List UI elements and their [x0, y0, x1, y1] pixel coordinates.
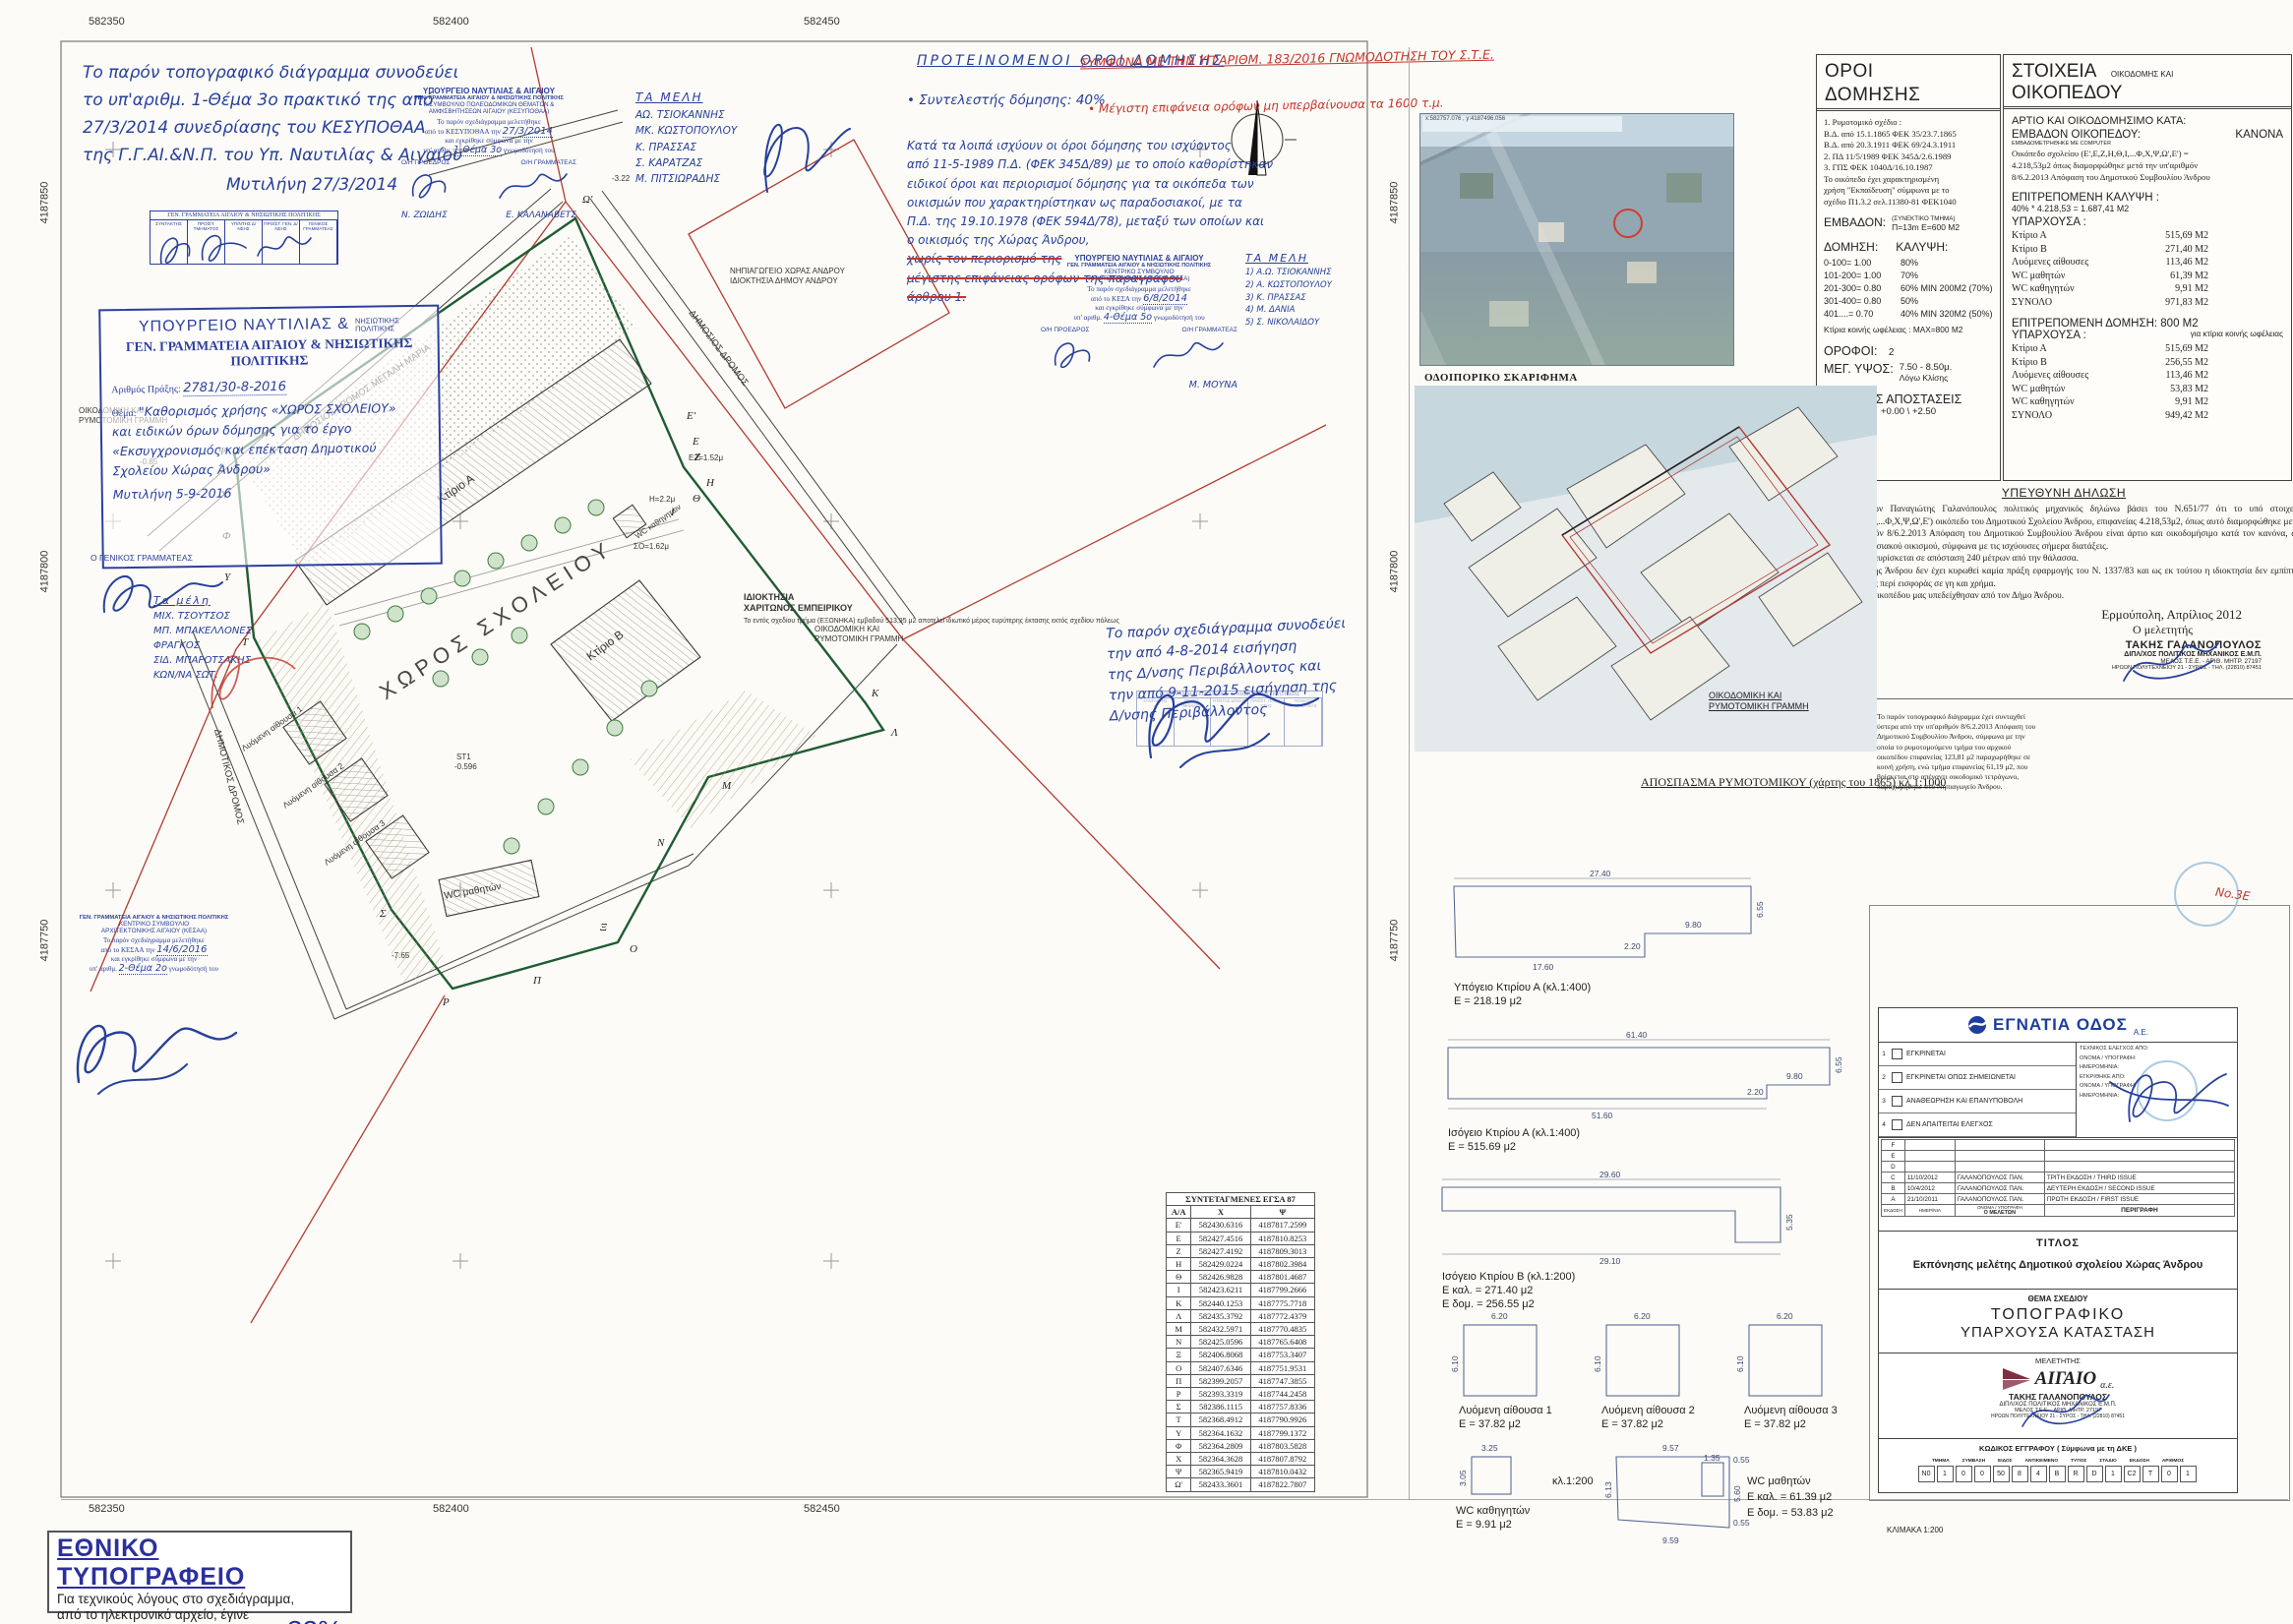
svg-text:27.40: 27.40 [1590, 871, 1611, 878]
signature-squiggles [155, 226, 332, 271]
aerial-caption: ΟΔΟΙΠΟΡΙΚΟ ΣΚΑΡΙΦΗΜΑ [1424, 372, 1578, 384]
svg-text:29.60: 29.60 [1599, 1170, 1621, 1179]
kesypothaa-l8a: υπ' αριθμ. [423, 147, 452, 154]
build-ratio-label: ΔΟΜΗΣΗ: [1824, 240, 1878, 254]
permit-title-2: ΓΕΝ. ΓΡΑΜΜΑΤΕΙΑ ΑΙΓΑΙΟΥ & ΝΗΣΙΩΤΙΚΗΣ ΠΟΛ… [111, 334, 428, 371]
svg-text:Ζ: Ζ [694, 451, 701, 463]
wc-students-caption: WC μαθητών [1747, 1475, 1811, 1487]
svg-text:Λ: Λ [890, 727, 898, 739]
svg-text:6.13: 6.13 [1603, 1481, 1613, 1498]
permit-title-main: ΥΠΟΥΡΓΕΙΟ ΝΑΥΤΙΛΙΑΣ & [139, 316, 349, 336]
zoning-line-label-2: ΡΥΜΟΤΟΜΙΚΗ ΓΡΑΜΜΗ [1709, 701, 1809, 711]
grid-y-right-1: 4187850 [1388, 182, 1400, 224]
proposed-body-text: Κατά τα λοιπά ισχύουν οι όροι δόμησης το… [907, 139, 1273, 247]
scanned-topographic-sheet: ΧΩΡΟΣ ΣΧΟΛΕΙΟΥ Κτίριο Α Κτίριο Β Λυόμενη… [0, 0, 2293, 1624]
coords-title: ΣΥΝΤΕΤΑΓΜΕΝΕΣ ΕΓΣΑ 87 [1167, 1193, 1315, 1206]
kesypothaa-l8c: γνωμοδότησή του [504, 147, 555, 154]
ministry-permit-stamp: ΥΠΟΥΡΓΕΙΟ ΝΑΥΤΙΛΙΑΣ & ΝΗΣΙΩΤΙΚΗΣ ΠΟΛΙΤΙΚ… [98, 305, 443, 570]
aerial-building-patch-1 [1539, 222, 1564, 242]
coords-col-id: Α/Α [1167, 1206, 1191, 1219]
zoning-note: Το παρόν τοπογραφικό διάγραμμα έχει συντ… [1877, 712, 2036, 793]
printing-office-title: ΕΘΝΙΚΟ ΤΥΠΟΓΡΑΦΕΙΟ [57, 1534, 342, 1592]
svg-text:9.59: 9.59 [1662, 1535, 1679, 1545]
grid-y-left-3: 4187750 [38, 920, 50, 962]
svg-text:9.80: 9.80 [1786, 1071, 1803, 1081]
permit-title-side: ΝΗΣΙΩΤΙΚΗΣ ΠΟΛΙΤΙΚΗΣ [355, 317, 399, 333]
list-item: 101-200= 1.0070% [1824, 270, 1993, 282]
coordinates-table: ΣΥΝΤΕΤΑΓΜΕΝΕΣ ΕΓΣΑ 87 Α/Α Χ Ψ Ε'582430.6… [1166, 1192, 1315, 1492]
table-row: Κτίριο Β271,40 Μ2 [2012, 243, 2208, 257]
declaration-title: ΥΠΕΥΘΥΝΗ ΔΗΛΩΣΗ [1827, 486, 2293, 500]
svg-text:5.35: 5.35 [1784, 1214, 1794, 1231]
permit-subject-value: "Καθορισμός χρήσης «ΧΩΡΟΣ ΣΧΟΛΕΙΟΥ» και … [112, 400, 396, 478]
approval-row: 4ΔΕΝ ΑΠΑΙΤΕΙΤΑΙ ΕΛΕΓΧΟΣ [1879, 1113, 2076, 1137]
list-item: 301-400= 0.8050% [1824, 295, 1993, 308]
coverage-label: ΚΑΛΥΨΗ: [1896, 240, 1948, 254]
table-row: Κ582440.12534187775.7718 [1167, 1296, 1315, 1309]
table-row: Κτίριο Α515,69 Μ2 [2012, 342, 2208, 356]
printing-office-line1: Για τεχνικούς λόγους στο σχεδιάγραμμα, [57, 1592, 342, 1607]
plot-area-note: ΕΜΒΑΔΟΜΕΤΡΗΘΗΚΕ ΜΕ COMPUTER [2012, 141, 2141, 147]
allowed-build-label: ΕΠΙΤΡΕΠΟΜΕΝΗ ΔΟΜΗΣΗ: 800 Μ2 [2012, 318, 2283, 330]
allowed-coverage-label: ΕΠΙΤΡΕΠΟΜΕΝΗ ΚΑΛΥΨΗ : [2012, 192, 2283, 204]
permit-date: Μυτιλήνη 5-9-2016 [113, 482, 430, 501]
svg-text:3.25: 3.25 [1481, 1443, 1498, 1453]
plot-title-2: ΟΙΚΟΠΕΔΟΥ [2012, 83, 2283, 104]
label-building-line-2a: ΟΙΚΟΔΟΜΙΚΗ ΚΑΙ [815, 625, 879, 633]
wc-students-area1: Ε καλ. = 61.39 μ2 [1747, 1491, 1832, 1503]
label-road-2: ΔΗΜΟΤΙΚΟΣ ΔΡΟΜΟΣ [211, 728, 246, 825]
permit-number-label: Αριθμός Πράξης: [111, 384, 181, 395]
svg-text:2.20: 2.20 [1747, 1087, 1764, 1097]
grid-x-bot-1: 582350 [89, 1503, 125, 1515]
ground-b-caption: Ισόγειο Κτιρίου Β (κλ.1:200) [1442, 1271, 1575, 1283]
table-row: Ο582407.63464187751.9531 [1167, 1361, 1315, 1374]
wc-teachers-caption: WC καθηγητών [1456, 1505, 1531, 1517]
approval-signature [2100, 1053, 2233, 1135]
grid-y-right-3: 4187750 [1388, 920, 1400, 962]
kesa-l1: ΥΠΟΥΡΓΕΙΟ ΝΑΥΤΙΛΙΑΣ & ΑΙΓΑΙΟΥ [1041, 254, 1237, 263]
svg-text:61.40: 61.40 [1626, 1030, 1648, 1040]
svg-text:6.10: 6.10 [1735, 1355, 1745, 1372]
kesaa-signatures [59, 1003, 246, 1102]
kesa-president-label: Ο/Η ΠΡΟΕΔΡΟΣ [1041, 327, 1090, 333]
company-name: ΕΓΝΑΤΙΑ ΟΔΟΣ [1993, 1015, 2128, 1035]
aerial-building-patch-3 [1489, 301, 1529, 327]
kesypothaa-protocol: 1-Θέμα 3ο [453, 145, 502, 156]
permit-subject-label: Θέμα: [112, 407, 137, 418]
label-st1-level: -0.596 [454, 762, 477, 771]
designer-signature [2007, 1383, 2115, 1438]
zoning-line-label-1: ΟΙΚΟΔΟΜΙΚΗ ΚΑΙ [1709, 691, 1781, 700]
kesypothaa-l4: ΑΜΦΙΣΒΗΤΗΣΕΩΝ ΑΙΓΑΙΟΥ (ΚΕΣΥΠΟΘΑΑ) [401, 108, 576, 115]
subject-line-1: ΤΟΠΟΓΡΑΦΙΚΟ [1879, 1306, 2237, 1324]
svg-text:6.20: 6.20 [1634, 1311, 1651, 1321]
svg-text:0.55: 0.55 [1733, 1518, 1750, 1528]
table-row: C 11/10/2012 ΓΑΛΑΝΟΠΟΥΛΟΣ ΠΑΝ. ΤΡΙΤΗ ΕΚΔ… [1882, 1173, 2235, 1183]
ground-a-outline [1448, 1048, 1830, 1099]
table-row: WC καθηγητών9,91 Μ2 [2012, 282, 2208, 296]
table-row: Σ582386.11154187757.8336 [1167, 1401, 1315, 1413]
terms-title-2: ΔΟΜΗΣΗΣ [1817, 85, 2000, 108]
kesaa-l5a: από το ΚΕΣΑΑ την [100, 946, 154, 954]
approval-row: 2ΕΓΚΡΙΝΕΤΑΙ ΟΠΩΣ ΣΗΜΕΙΩΝΕΤΑΙ [1879, 1066, 2076, 1090]
title-label: ΤΙΤΛΟΣ [1879, 1237, 2237, 1249]
prefab2-area: Ε = 37.82 μ2 [1601, 1418, 1663, 1430]
kesypothaa-l5: Το παρόν σχεδιάγραμμα μελετήθηκε [401, 118, 576, 126]
kesa-l7: και εγκρίθηκε σύμφωνα με την [1041, 304, 1237, 312]
table-row: Λυόμενες αίθουσες113,46 Μ2 [2012, 369, 2208, 383]
kesa-protocol: 4-Θέμα 5ο [1104, 312, 1152, 324]
permit-number-value: 2781/30-8-2016 [183, 379, 286, 395]
svg-text:6.10: 6.10 [1593, 1355, 1602, 1372]
svg-text:Ω': Ω' [582, 194, 593, 206]
wc-teachers-area: Ε = 9.91 μ2 [1456, 1519, 1512, 1531]
aerial-site-marker [1613, 209, 1643, 238]
subject-label: ΘΕΜΑ ΣΧΕΔΙΟΥ [1879, 1294, 2237, 1303]
prefab3-area: Ε = 37.82 μ2 [1744, 1418, 1806, 1430]
svg-text:17.60: 17.60 [1533, 962, 1554, 972]
svg-text:Ν: Ν [656, 837, 665, 849]
svg-text:Π: Π [532, 975, 542, 987]
label-building-line-2b: ΡΥΜΟΤΟΜΙΚΗ ΓΡΑΜΜΗ [815, 634, 904, 643]
members-list-2: ΤΑ ΜΕΛΗ 1) Α.Ω. ΤΣΙΟΚΑΝΝΗΣ 2) Α. ΚΩΣΤΟΠΟ… [1245, 252, 1363, 330]
svg-text:5.60: 5.60 [1732, 1485, 1742, 1502]
plot-area-label: ΕΜΒΑΔΟΝ ΟΙΚΟΠΕΔΟΥ: [2012, 129, 2141, 141]
subject-line-2: ΥΠΑΡΧΟΥΣΑ ΚΑΤΑΣΤΑΣΗ [1879, 1324, 2237, 1341]
kesaa-l7a: υπ' αριθμ. [90, 965, 117, 973]
kesaa-l6: και εγκρίθηκε σύμφωνα με την [53, 955, 255, 963]
svg-text:Ε: Ε [692, 436, 699, 448]
svg-text:Σ: Σ [379, 908, 387, 920]
kesa-l8a: υπ' αριθμ. [1073, 314, 1102, 322]
basement-a-outline [1454, 886, 1751, 957]
members1-signatures [748, 93, 856, 211]
kesa-l6a: από το ΚΕΣΑ την [1091, 295, 1141, 303]
coords-col-y: Ψ [1250, 1206, 1314, 1219]
height-note: Λόγω Κλίσης [1900, 373, 1953, 383]
aerial-photo: x:582757.076 , y:4187496.056 [1419, 113, 1734, 366]
ground-b-area2: Ε δομ. = 256.55 μ2 [1442, 1298, 1535, 1310]
plot-area-text: Οικόπεδο σχολείου (Ε',Ε,Ζ,Η,Θ,Ι,...Φ,Χ,Ψ… [2012, 149, 2283, 183]
list-item: 201-300= 0.8060% MIN 200M2 (70%) [1824, 282, 1993, 295]
kesypothaa-l6a: από το ΚΕΣΥΠΟΘΑΑ την [425, 128, 501, 136]
kesypothaa-l7: και εγκρίθηκε σύμφωνα με την [401, 137, 576, 145]
svg-text:Ε': Ε' [686, 410, 696, 422]
rev-footer-4: Ο ΜΕΛΕΤΩΝ [1958, 1210, 2042, 1216]
table-row: WC καθηγητών9,91 Μ2 [2012, 395, 2208, 409]
existing-coverage-label: ΥΠΑΡΧΟΥΣΑ : [2012, 216, 2283, 228]
table-row: B 10/4/2012 ΓΑΛΑΝΟΠΟΥΛΟΣ ΠΑΝ. ΔΕΥΤΕΡΗ ΕΚ… [1882, 1183, 2235, 1194]
coords-rows: Ε'582430.63164187817.2599 Ε582427.451641… [1167, 1219, 1315, 1491]
owner-note: Το εντός σχεδίου τμήμα (ΕΞΩΝΗΚΑ) εμβαδού… [744, 617, 1119, 625]
svg-text:Ξ: Ξ [600, 922, 607, 933]
coords-col-x: Χ [1191, 1206, 1250, 1219]
scale-label: ΚΛΙΜΑΚΑ 1:200 [1887, 1526, 1943, 1534]
ratio-coverage-rows: 0-100= 1.0080%101-200= 1.0070%201-300= 0… [1824, 257, 1993, 321]
doc-code-boxes: Ν01005084ΒRD1C2T01 [1879, 1466, 2237, 1482]
table-row: Ω'582433.36014187822.7807 [1167, 1478, 1315, 1491]
kesa-l3: ΚΕΝΤΡΙΚΟ ΣΥΜΒΟΥΛΙΟ [1041, 269, 1237, 275]
list-item: 0-100= 1.0080% [1824, 257, 1993, 270]
kesypothaa-president-label: Ο/Η ΠΡΟΕΔΡΟΣ [401, 159, 451, 166]
existing-coverage-table: Κτίριο Α515,69 Μ2Κτίριο Β271,40 Μ2Λυόμεν… [2012, 229, 2283, 309]
svg-text:6.55: 6.55 [1834, 1056, 1843, 1073]
wc-students-outline [1616, 1457, 1729, 1528]
grid-x-top-1: 582350 [89, 16, 125, 28]
grid-y-left-1: 4187850 [38, 182, 50, 224]
floor-plan-diagrams: 27.40 6.55 9.80 2.20 17.60 Υπόγειο Κτιρί… [1434, 871, 1872, 1559]
kesa-secretary-name: Μ. ΜΟΥΝΑ [1041, 380, 1237, 391]
svg-text:Ρ: Ρ [442, 996, 450, 1008]
table-row: Λ582435.37924187772.4379 [1167, 1309, 1315, 1322]
approval-row: 1ΕΓΚΡΙΝΕΤΑΙ [1879, 1043, 2076, 1066]
table-row: ΣΥΝΟΛΟ949,42 Μ2 [2012, 409, 2208, 423]
signature-table-header: ΓΕΝ. ΓΡΑΜΜΑΤΕΙΑ ΑΙΓΑΙΟΥ & ΝΗΣΙΩΤΙΚΗΣ ΠΟΛ… [150, 211, 338, 220]
spot-level-3: -7.65 [392, 951, 410, 960]
members3-red-scribble [197, 630, 315, 728]
table-row: Ν582425.05964187765.6408 [1167, 1336, 1315, 1349]
table-row: ΣΥΝΟΛΟ971,83 Μ2 [2012, 296, 2208, 310]
members3-title: Τα μέλη [153, 594, 291, 607]
approval-options: 1ΕΓΚΡΙΝΕΤΑΙ 2ΕΓΚΡΙΝΕΤΑΙ ΟΠΩΣ ΣΗΜΕΙΩΝΕΤΑΙ… [1879, 1043, 2076, 1137]
drawing-title: Εκπόνησης μελέτης Δημοτικού σχολείου Χώρ… [1879, 1259, 2237, 1271]
kesypothaa-secretary-name: Ε. ΚΑΛΑΝΑΒΕΤΣ [506, 211, 576, 220]
table-row: Φ582364.28094187803.5828 [1167, 1439, 1315, 1452]
table-row: Μ582432.59714187770.4835 [1167, 1323, 1315, 1336]
sheet-divider [1409, 47, 1410, 1499]
kesypothaa-signatures [405, 166, 573, 206]
aerial-coords-strip: x:582757.076 , y:4187496.056 [1422, 116, 1622, 132]
table-row: Ψ582365.94194187810.0432 [1167, 1466, 1315, 1478]
revision-rows: F E D [1882, 1140, 2235, 1205]
handwritten-note-topleft-date: Μυτιλήνη 27/3/2014 [226, 175, 397, 195]
aerial-grove-patch [1666, 173, 1702, 203]
table-row: Ι582423.62114187799.2666 [1167, 1284, 1315, 1296]
allowed-build-note: για κτίρια κοινής ωφέλειας [2191, 330, 2283, 341]
svg-text:Ο: Ο [630, 943, 637, 955]
area-note: (ΣΥΝΕΚΤΙΚΟ ΤΜΗΜΑ) [1892, 215, 1960, 222]
table-row: A 21/10/2011 ΓΑΛΑΝΟΠΟΥΛΟΣ ΠΑΝ. ΠΡΩΤΗ ΕΚΔ… [1882, 1194, 2235, 1205]
doc-code-group-labels: ΤΜΗΜΑΣΥΜΒΑΣΗΕΙΔΟΣΑΝΤΙΚΕΙΜΕΝΟΤΥΠΟΣΣΤΑΔΙΟΕ… [1879, 1459, 2237, 1464]
height-value: 7.50 - 8.50μ. [1900, 362, 1953, 373]
members2-title: ΤΑ ΜΕΛΗ [1245, 252, 1363, 265]
svg-text:2.20: 2.20 [1624, 941, 1641, 951]
prefab1-outline [1464, 1325, 1537, 1396]
list-item: 401....= 0.7040% MIN 320M2 (50%) [1824, 308, 1993, 321]
table-row: Ξ582406.80684187753.3407 [1167, 1349, 1315, 1361]
prefab2-outline [1606, 1325, 1679, 1396]
grid-x-top-3: 582450 [804, 16, 840, 28]
prefab3-caption: Λυόμενη αίθουσα 3 [1744, 1405, 1838, 1416]
svg-text:Θ: Θ [693, 493, 700, 505]
table-row: Ε'582430.63164187817.2599 [1167, 1219, 1315, 1232]
kesaa-l3: ΑΡΧΙΤΕΚΤΟΝΙΚΗΣ ΑΙΓΑΙΟΥ (ΚΕΣΑΑ) [53, 928, 255, 934]
prefab3-outline [1749, 1325, 1822, 1396]
kesa-signatures [1046, 333, 1233, 375]
svg-text:6.55: 6.55 [1755, 901, 1765, 918]
kesypothaa-president-name: Ν. ΖΩΙΔΗΣ [401, 211, 448, 220]
wc-students-area2: Ε δομ. = 53.83 μ2 [1747, 1507, 1834, 1519]
svg-text:6.10: 6.10 [1450, 1355, 1460, 1372]
rev-footer-5: ΠΕΡΙΓΡΑΦΗ [2044, 1205, 2234, 1217]
svg-text:6.20: 6.20 [1491, 1311, 1508, 1321]
terms-title-1: ΟΡΟΙ [1817, 55, 2000, 85]
label-road-3: ΔΗΜΟΣΙΟΣ ΔΡΟΜΟΣ [687, 308, 751, 389]
members2-names: 1) Α.Ω. ΤΣΙΟΚΑΝΝΗΣ 2) Α. ΚΩΣΤΟΠΟΥΛΟΥ 3) … [1245, 267, 1363, 330]
table-row: Π582399.20574187747.3855 [1167, 1374, 1315, 1387]
existing-build-label: ΥΠΑΡΧΟΥΣΑ : [2012, 330, 2086, 341]
kesa-secretary-label: Ο/Η ΓΡΑΜΜΑΤΕΑΣ [1182, 327, 1237, 333]
svg-text:9.57: 9.57 [1662, 1443, 1679, 1453]
declaration-body: Ο υπογράφων Παναγιώτης Γαλανόπουλος πολι… [1827, 504, 2293, 603]
designer-label: ΜΕΛΕΤΗΤΗΣ [1879, 1356, 2237, 1365]
zoning-extract-map [1415, 386, 1877, 752]
national-printing-office-box: ΕΘΝΙΚΟ ΤΥΠΟΓΡΑΦΕΙΟ Για τεχνικούς λόγους … [47, 1531, 352, 1613]
kesypothaa-secretary-label: Ο/Η ΓΡΑΜΜΑΤΕΑΣ [521, 159, 576, 166]
signature-table-stamp: ΓΕΝ. ΓΡΑΜΜΑΤΕΙΑ ΑΙΓΑΙΟΥ & ΝΗΣΙΩΤΙΚΗΣ ΠΟΛ… [150, 211, 338, 265]
grid-x-bot-2: 582400 [433, 1503, 469, 1515]
approval-row: 3ΑΝΑΘΕΩΡΗΣΗ ΚΑΙ ΕΠΑΝΥΠΟΒΟΛΗ [1879, 1090, 2076, 1113]
table-row: D [1882, 1162, 2235, 1173]
proposed-coefficient: • Συντελεστής δόμησης: 40% [907, 92, 1106, 108]
kesa-stamp: ΥΠΟΥΡΓΕΙΟ ΝΑΥΤΙΛΙΑΣ & ΑΙΓΑΙΟΥ ΓΕΝ. ΓΡΑΜΜ… [1041, 254, 1237, 391]
aerial-field-patch [1460, 173, 1493, 199]
area-value: Π=13m Ε=600 Μ2 [1892, 222, 1960, 232]
table-row: Ε582427.45164187810.8253 [1167, 1232, 1315, 1244]
plot-data-panel: ΣΤΟΙΧΕΙΑ ΟΙΚΟΔΟΜΗΣ ΚΑΙ ΟΙΚΟΠΕΔΟΥ ΑΡΤΙΟ Κ… [2003, 54, 2292, 481]
kesypothaa-l1: ΥΠΟΥΡΓΕΙΟ ΝΑΥΤΙΛΙΑΣ & ΑΙΓΑΙΟΥ [401, 87, 576, 95]
label-property-owner-1: ΙΔΙΟΚΤΗΣΙΑ [744, 592, 795, 602]
kesaa-l2: ΚΕΝΤΡΙΚΟ ΣΥΜΒΟΥΛΙΟ [53, 921, 255, 928]
declaration-block: ΥΠΕΥΘΥΝΗ ΔΗΛΩΣΗ Ο υπογράφων Παναγιώτης Γ… [1816, 482, 2293, 699]
rev-footer-2: ΗΜΕΡ/ΝΙΑ [1904, 1205, 1955, 1217]
buildable-label: ΑΡΤΙΟ ΚΑΙ ΟΙΚΟΔΟΜΗΣΙΜΟ ΚΑΤΑ: [2012, 115, 2283, 127]
svg-text:1.35: 1.35 [1704, 1453, 1720, 1463]
by-rule-value: ΚΑΝΟΝΑ [2235, 129, 2283, 147]
allowed-coverage-calc: 40% * 4.218,53 = 1.687,41 Μ2 [2012, 204, 2283, 213]
label-kindergarten-1: ΝΗΠΙΑΓΩΓΕΙΟ ΧΩΡΑΣ ΑΝΔΡΟΥ [730, 267, 846, 275]
plot-title-small: ΟΙΚΟΔΟΜΗΣ ΚΑΙ [2111, 70, 2174, 79]
svg-text:29.10: 29.10 [1599, 1256, 1621, 1266]
svg-text:Η: Η [705, 477, 715, 489]
kesypothaa-stamp: ΥΠΟΥΡΓΕΙΟ ΝΑΥΤΙΛΙΑΣ & ΑΙΓΑΙΟΥ ΓΕΝ. ΓΡΑΜΜ… [401, 87, 576, 220]
table-row: Υ582364.16324187799.1372 [1167, 1426, 1315, 1439]
table-row: WC μαθητών53,83 Μ2 [2012, 383, 2208, 396]
faded-stamp-signatures [1121, 669, 1348, 777]
grid-y-left-2: 4187800 [38, 551, 50, 593]
kesaa-stamp: ΓΕΝ. ΓΡΑΜΜΑΤΕΙΑ ΑΙΓΑΙΟΥ & ΝΗΣΙΩΤΙΚΗΣ ΠΟΛ… [53, 915, 255, 974]
svg-text:Μ: Μ [721, 780, 732, 792]
table-row: Ζ582427.41924187809.3013 [1167, 1244, 1315, 1257]
label-property-owner-2: ΧΑΡΙΤΩΝΟΣ ΕΜΠΕΙΡΙΚΟΥ [744, 603, 853, 613]
floors-value: 2 [1889, 347, 1895, 358]
svg-text:6.20: 6.20 [1777, 1311, 1793, 1321]
company-suffix: Α.Ε. [2134, 1028, 2148, 1037]
table-row: Χ582364.36284187807.8792 [1167, 1453, 1315, 1466]
plot-title-1: ΣΤΟΙΧΕΙΑ [2012, 61, 2096, 82]
ground-b-outline [1442, 1187, 1780, 1242]
wc-teachers-outline [1472, 1457, 1511, 1494]
label-kindergarten-2: ΙΔΙΟΚΤΗΣΙΑ ΔΗΜΟΥ ΑΝΔΡΟΥ [730, 276, 838, 285]
title-block: ΕΓΝΑΤΙΑ ΟΔΟΣ Α.Ε. 1ΕΓΚΡΙΝΕΤΑΙ 2ΕΓΚΡΙΝΕΤΑ… [1878, 1007, 2238, 1493]
prefab1-area: Ε = 37.82 μ2 [1459, 1418, 1521, 1430]
table-row: Κτίριο Β256,55 Μ2 [2012, 356, 2208, 370]
kesa-l8c: γνωμοδότησή του [1154, 314, 1205, 322]
egnatia-logo-icon [1967, 1015, 1987, 1035]
floors-label: ΟΡΟΦΟΙ: [1824, 344, 1877, 358]
table-row: Τ582368.49124187790.9926 [1167, 1413, 1315, 1426]
table-row: Θ582426.98284187801.4687 [1167, 1271, 1315, 1284]
kesaa-l7c: γνωμοδότησή του [169, 965, 218, 973]
existing-build-table: Κτίριο Α515,69 Μ2Κτίριο Β256,55 Μ2Λυόμεν… [2012, 342, 2283, 422]
label-st1: ST1 [456, 752, 471, 761]
engineer-signature [2104, 632, 2222, 691]
height-label: ΜΕΓ. ΥΨΟΣ: [1824, 362, 1894, 383]
table-row: Λυόμενες αίθουσες113,46 Μ2 [2012, 256, 2208, 270]
ground-a-caption: Ισόγειο Κτιρίου Α (κλ.1:400) [1448, 1127, 1580, 1139]
table-row: Κτίριο Α515,69 Μ2 [2012, 229, 2208, 243]
svg-text:0.55: 0.55 [1733, 1455, 1750, 1465]
prefab2-caption: Λυόμενη αίθουσα 2 [1601, 1405, 1695, 1416]
floorplans-scale: κλ.1:200 [1552, 1475, 1594, 1487]
declaration-place-date: Ερμούπολη, Απρίλιος 2012 [1827, 607, 2242, 623]
public-buildings-note: Κτίρια κοινής ωφέλειας : MAX=800 M2 [1824, 325, 1993, 334]
kesypothaa-l3: Κ.ΣΥΜΒΟΥΛΙΟ ΠΟΛΕΟΔΟΜΙΚΩΝ ΘΕΜΑΤΩΝ & [401, 101, 576, 108]
svg-text:3.05: 3.05 [1458, 1470, 1468, 1486]
building-b [551, 580, 700, 721]
svg-text:51.60: 51.60 [1592, 1111, 1613, 1120]
ground-b-area1: Ε καλ. = 271.40 μ2 [1442, 1285, 1533, 1296]
terms-legal-refs: 1. Ρυμοτομικό σχέδιο : Β.Δ. από 15.1.186… [1824, 117, 1993, 208]
wall-height-3: ΣΟ=1.62μ [634, 542, 669, 551]
svg-text:Κ: Κ [871, 688, 879, 699]
wall-height-2: Η=2.2μ [649, 495, 676, 504]
grid-x-bot-3: 582450 [804, 1503, 840, 1515]
spot-level-2: -3.22 [612, 174, 631, 183]
permit-signer-label: Ο ΓΕΝΙΚΟΣ ΓΡΑΜΜΑΤΕΑΣ [91, 553, 193, 563]
prefab1-caption: Λυόμενη αίθουσα 1 [1459, 1405, 1552, 1416]
kesaa-protocol: 2-Θέμα 2ο [119, 963, 167, 975]
doc-code-label: ΚΩΔΙΚΟΣ ΕΓΓΡΑΦΟΥ ( Σύμφωνα με τη ΔΚΕ ) [1879, 1444, 2237, 1453]
table-row: E [1882, 1151, 2235, 1162]
svg-text:9.80: 9.80 [1685, 920, 1702, 930]
area-label: ΕΜΒΑΔΟΝ: [1824, 215, 1886, 229]
ground-a-area: Ε = 515.69 μ2 [1448, 1141, 1516, 1153]
rev-footer-1: ΕΚΔΟΣΗ [1882, 1205, 1905, 1217]
basement-a-area: Ε = 218.19 μ2 [1454, 995, 1522, 1007]
table-row: WC μαθητών61,39 Μ2 [2012, 270, 2208, 283]
kesa-l5: Το παρόν σχεδιάγραμμα μελετήθηκε [1041, 285, 1237, 293]
basement-a-caption: Υπόγειο Κτιρίου Α (κλ.1:400) [1454, 982, 1591, 993]
aerial-building-patch-2 [1627, 262, 1657, 283]
grid-y-right-2: 4187800 [1388, 551, 1400, 593]
table-row: Η582429.02244187802.3984 [1167, 1258, 1315, 1271]
table-row: F [1882, 1140, 2235, 1151]
grid-x-top-2: 582400 [433, 16, 469, 28]
kesaa-l4: Το παρόν σχεδιάγραμμα μελετήθηκε [53, 936, 255, 944]
kesa-l4: ΑΡΧΙΤΕΚΤΟΝΙΚΗΣ ΑΙΓΑΙΟΥ (ΚΕΣΑ) [1041, 275, 1237, 282]
table-row: Ρ582393.33194187744.2458 [1167, 1388, 1315, 1401]
